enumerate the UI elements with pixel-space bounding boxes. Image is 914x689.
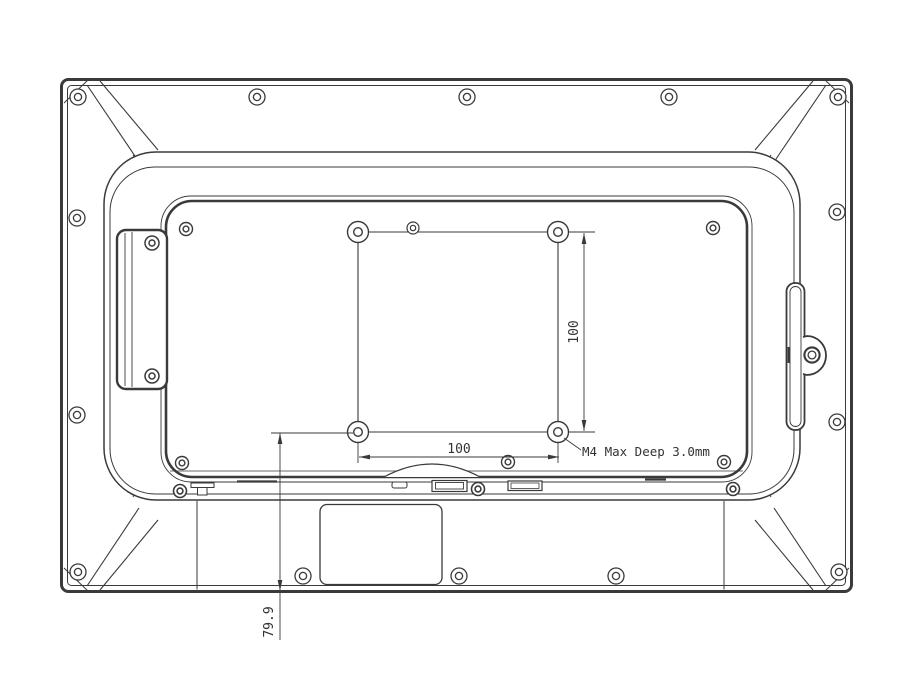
screw [69,210,85,226]
rear-view-drawing: 100 100 79.9 M4 Max Deep 3.0mm [0,0,914,689]
screw [727,483,740,496]
screw [295,568,311,584]
screw [608,568,624,584]
vesa-hole-top-right [548,222,569,243]
connector-port [432,481,467,492]
screw [707,222,720,235]
recess-panel [161,196,752,482]
screw [69,407,85,423]
label-area-box [320,505,442,585]
screw [459,89,475,105]
alignment-hole [407,222,419,234]
left-hinge-plate [117,230,167,389]
screw [176,457,189,470]
screw [70,89,86,105]
screw [829,414,845,430]
screw [831,564,847,580]
screw [718,456,731,469]
connector-port [508,481,542,491]
screw [180,223,193,236]
lock-tab-hole [804,347,819,362]
vesa-vertical-dimension-label: 100 [567,320,582,343]
vesa-hole-bottom-left [348,422,369,443]
small-cutout [392,482,407,488]
screw [661,89,677,105]
screw [174,485,187,498]
bottom-offset-dimension-label: 79.9 [262,606,277,637]
vesa-horizontal-dimension-label: 100 [447,442,470,457]
screw [472,483,485,496]
technical-drawing-canvas: 100 100 79.9 M4 Max Deep 3.0mm [0,0,914,689]
screw [249,89,265,105]
mount-hole-note-label: M4 Max Deep 3.0mm [582,444,710,459]
screw [829,204,845,220]
screw [451,568,467,584]
screw [830,89,846,105]
screw [70,564,86,580]
screw [502,456,515,469]
vesa-hole-top-left [348,222,369,243]
